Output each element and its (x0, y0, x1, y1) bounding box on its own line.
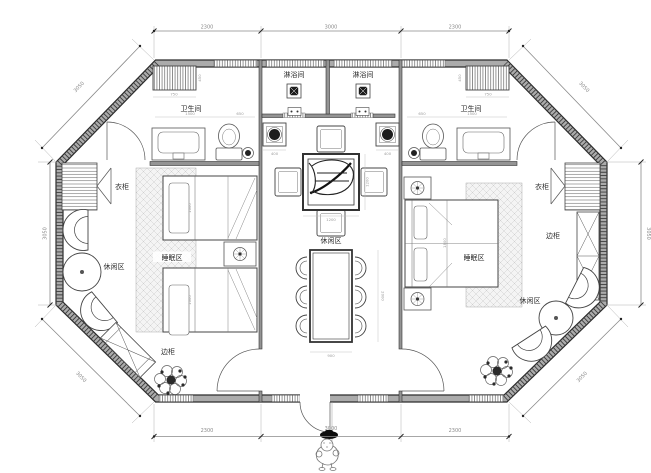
dim-left: 3050 (43, 227, 49, 240)
twin-bed-2 (163, 268, 257, 335)
plant-icon (481, 357, 513, 386)
chair-icon (317, 126, 345, 152)
window-icon (214, 60, 257, 66)
sd-rad-depth-left: 450 (197, 74, 202, 82)
nightstand (224, 242, 256, 266)
mascot-figure (316, 430, 339, 471)
nightstand (404, 288, 431, 310)
label-bathroom-left: 卫生间 (181, 104, 202, 113)
label-shower-right: 淋浴间 (353, 70, 374, 79)
dim-bottom-right: 2300 (449, 428, 462, 434)
twin-bed-1 (163, 176, 257, 240)
chair-icon (317, 210, 345, 236)
dim-right: 3050 (645, 227, 651, 240)
window-icon (469, 395, 503, 401)
lamp-icon (234, 248, 247, 261)
radiator-icon (153, 66, 196, 90)
floor-drain-icon (287, 84, 301, 98)
chair-icon (296, 286, 307, 308)
sd-basin-right: 400 (384, 151, 392, 156)
chair-icon (355, 315, 366, 337)
floor-plan-canvas: 2300 3000 2300 2300 3000 2300 3050 3050 … (0, 0, 651, 473)
window-icon (266, 60, 324, 66)
room-door-left (217, 349, 259, 391)
right-room (402, 163, 606, 391)
sd-radiator-right: 750 (484, 92, 492, 97)
sd-basin-left: 400 (271, 151, 279, 156)
dim-diag-tr: 3050 (577, 81, 590, 94)
sd-bath-right-2: 650 (418, 111, 426, 116)
wardrobe-left (62, 163, 111, 210)
dining-area (296, 250, 366, 342)
washbasin-icon (376, 123, 399, 146)
label-shower-left: 淋浴间 (284, 70, 305, 79)
sd-radiator-left: 750 (170, 92, 178, 97)
dim-diag-bl: 3050 (74, 371, 87, 384)
sd-bed1: 1000 (187, 203, 192, 213)
chair-icon (296, 315, 307, 337)
shower-room-left (283, 84, 305, 118)
plant-icon (155, 366, 187, 395)
floor-plan: 2300 3000 2300 2300 3000 2300 3050 3050 … (0, 0, 651, 473)
tub-chair-icon (63, 210, 88, 251)
bathroom-left-fixtures (107, 66, 254, 160)
label-sleeping-left: 睡眠区 (162, 254, 183, 262)
lamp-icon (411, 293, 424, 306)
washbasin-icon (263, 123, 286, 146)
label-sleeping-right: 睡眠区 (464, 254, 485, 262)
dining-table (310, 250, 352, 342)
chair-icon (355, 286, 366, 308)
sd-bed-big: 1800 (442, 238, 447, 248)
label-cabinet-left: 边柜 (161, 347, 175, 356)
shower-room-right (351, 84, 373, 118)
sd-rad-depth-right: 450 (457, 74, 462, 82)
label-leisure-center: 休闲区 (321, 236, 342, 245)
chair-icon (275, 168, 301, 196)
sd-bath-left-2: 650 (236, 111, 244, 116)
label-leisure-left: 休闲区 (104, 262, 125, 271)
dim-top-left: 2300 (201, 25, 214, 31)
bathroom-right-fixtures (409, 66, 556, 160)
nightstand (404, 177, 431, 199)
vanity-sink-icon (457, 128, 510, 160)
sd-bed2: 1000 (187, 295, 192, 305)
label-leisure-right: 休闲区 (520, 296, 541, 305)
sd-dining-l: 2000 (381, 291, 386, 301)
dim-diag-tl: 3050 (73, 81, 86, 94)
label-wardrobe-right: 衣柜 (535, 182, 549, 191)
round-drain-icon (243, 148, 254, 159)
window-icon (272, 395, 300, 401)
dim-top-right: 2300 (449, 25, 462, 31)
chair-icon (355, 257, 366, 279)
tea-table (303, 154, 359, 210)
floor-drain-icon (356, 84, 370, 98)
window-icon (159, 395, 193, 401)
window-icon (334, 60, 392, 66)
dim-bottom-center: 3000 (325, 426, 338, 432)
window-icon (402, 60, 445, 66)
double-bed (405, 200, 498, 287)
sd-tea-v: 1200 (365, 177, 370, 187)
room-door-right (402, 349, 444, 391)
lamp-icon (411, 182, 424, 195)
vanity-sink-icon (152, 128, 205, 160)
sd-tea-h: 1200 (326, 217, 336, 222)
label-cabinet-right: 边柜 (546, 231, 560, 240)
wardrobe-right (551, 163, 600, 210)
toilet-icon (216, 124, 242, 160)
bathroom-door-left (107, 122, 145, 160)
label-bathroom-right: 卫生间 (461, 104, 482, 113)
window-icon (358, 395, 388, 401)
dim-top-center: 3000 (325, 25, 338, 31)
sd-dining-w: 900 (327, 353, 335, 358)
dim-bottom-left: 2300 (201, 428, 214, 434)
round-drain-icon (409, 148, 420, 159)
left-room (62, 163, 259, 395)
radiator-icon (466, 66, 509, 90)
dim-diag-br: 3050 (576, 371, 589, 384)
bathroom-door-right (517, 122, 555, 160)
label-wardrobe-left: 衣柜 (115, 182, 129, 191)
toilet-icon (420, 124, 446, 160)
entrance-opening (300, 393, 330, 404)
chair-icon (296, 257, 307, 279)
